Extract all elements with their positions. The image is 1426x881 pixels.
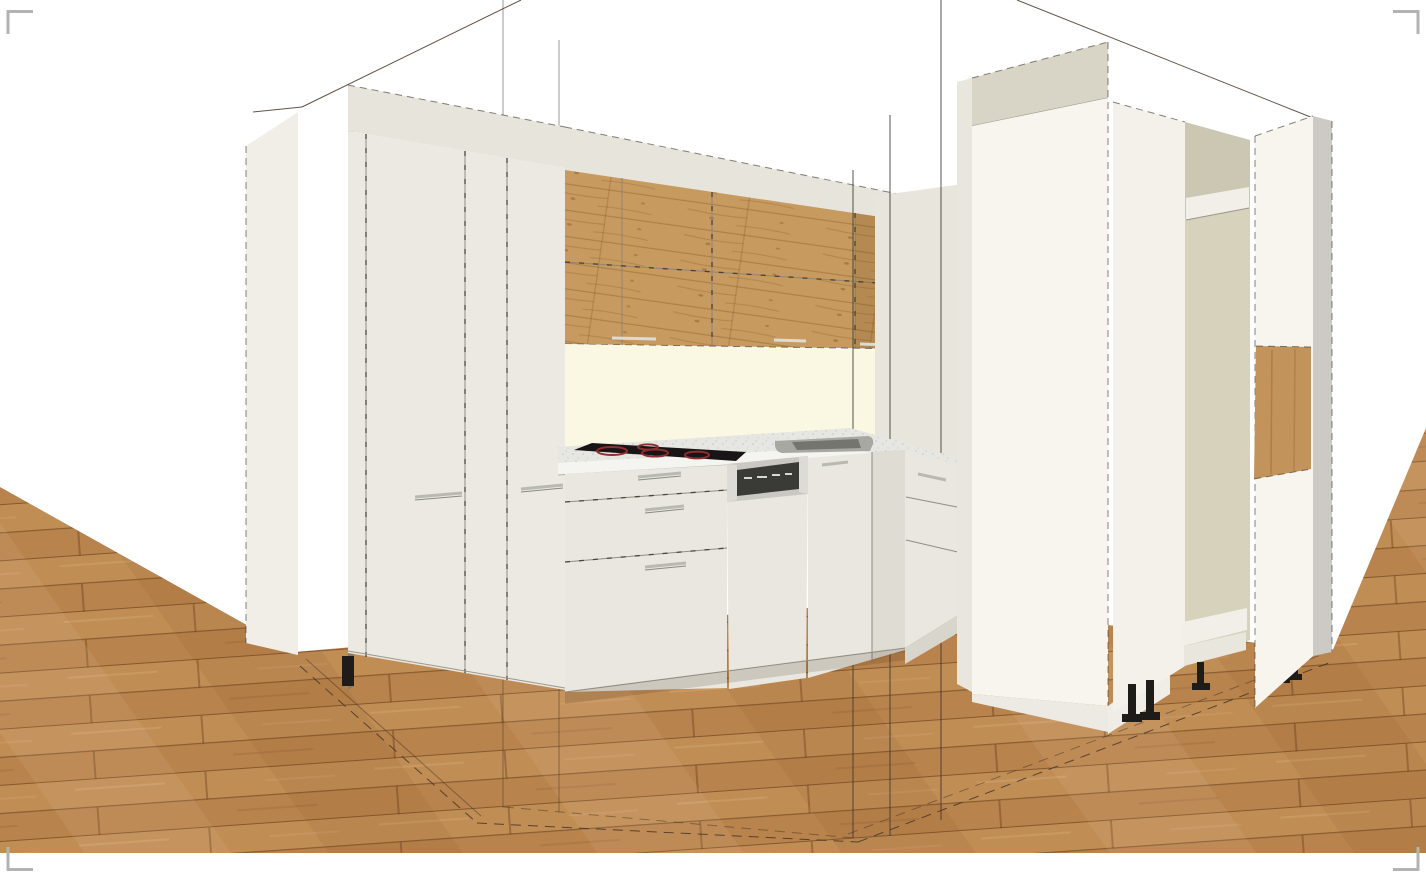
corner-face-shade [872,450,905,662]
corner-mark-top-left [8,12,33,35]
control-mark [757,476,767,478]
kitchen-3d-scene: Oak plank floor Room wireframe guides Ta… [0,0,1426,881]
corner-base-unit[interactable]: Corner base unit [905,450,963,664]
ceiling-edge-left [253,107,302,112]
foot-leg [1128,684,1136,716]
flap-handle[interactable] [774,340,806,341]
foot-plate [1122,714,1142,722]
tower-left-edge [957,78,972,692]
end-panel-side-band [1313,116,1332,656]
corner-mark-top-right [1393,12,1418,35]
tower-front[interactable] [972,98,1108,706]
tall-unit-doors[interactable] [348,131,565,690]
niche-grain [1294,349,1295,471]
render-viewport[interactable]: Oak plank floor Room wireframe guides Ta… [0,0,1426,881]
foot-leg [1197,662,1204,684]
tall-cabinet-right-open[interactable]: Tall cabinet tower (open carcass with sh… [1113,102,1250,712]
dishwasher[interactable]: Semi-integrated dishwasher [727,456,808,689]
foot-plate [1192,683,1210,690]
base-drawer-unit[interactable]: Drawer base unit [565,465,727,692]
wall-cabinets-wood[interactable]: Wall cabinets with oak fronts [565,127,908,349]
foot-plate [1140,712,1160,720]
left-side-panel[interactable] [246,112,298,655]
foot-leg [1146,680,1154,714]
niche-grain [1271,350,1272,474]
drawer-fronts[interactable] [565,465,727,692]
oak-niche[interactable] [1254,346,1311,479]
tall-end-panel[interactable]: Tall end panel with oak niche [1254,116,1332,708]
flap-handle[interactable] [612,338,656,339]
panel-cap-right [799,456,808,494]
control-mark [744,477,752,479]
left-tall-cabinet[interactable]: Tall cabinet unit (two doors) [246,85,565,690]
ceiling-edge-up [302,0,521,107]
open-tower-side[interactable] [1113,102,1185,712]
plinth-foot [342,656,354,686]
control-mark [772,474,780,476]
panel-cap-left [727,464,737,502]
control-mark [785,473,792,475]
